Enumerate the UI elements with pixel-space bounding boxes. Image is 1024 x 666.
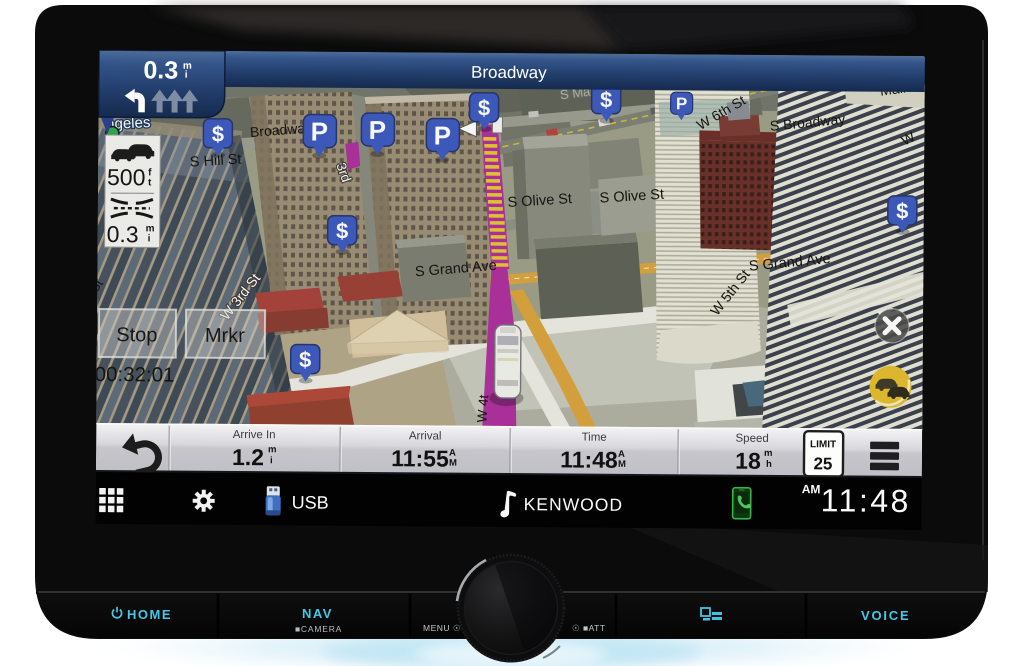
svg-text:KENWOOD: KENWOOD: [524, 494, 624, 515]
svg-text:25: 25: [813, 454, 832, 473]
svg-text:MENU ☉: MENU ☉: [423, 623, 461, 633]
svg-text:Speed: Speed: [735, 433, 768, 445]
svg-text:HOME: HOME: [127, 607, 172, 622]
svg-text:1.2: 1.2: [232, 444, 264, 470]
svg-text:i: i: [270, 455, 273, 466]
svg-text:M: M: [449, 458, 457, 469]
svg-text:m: m: [764, 448, 773, 459]
svg-text:VOICE: VOICE: [861, 608, 910, 623]
svg-text:11:48: 11:48: [560, 446, 618, 472]
svg-text:☉ ■ATT: ☉ ■ATT: [572, 623, 606, 633]
svg-text:i: i: [185, 70, 188, 81]
svg-text:LIMIT: LIMIT: [810, 439, 836, 450]
svg-text:0.3: 0.3: [143, 56, 178, 84]
svg-text:Arrive In: Arrive In: [233, 429, 276, 441]
svg-text:m: m: [268, 444, 277, 455]
svg-text:Arrival: Arrival: [409, 430, 442, 442]
svg-text:Broadway: Broadway: [471, 63, 547, 83]
svg-text:11:48: 11:48: [821, 482, 911, 519]
svg-text:h: h: [766, 459, 772, 470]
svg-text:18: 18: [735, 448, 761, 474]
svg-text:AM: AM: [802, 482, 821, 496]
svg-text:NAV: NAV: [302, 606, 333, 621]
svg-text:Time: Time: [582, 432, 607, 444]
svg-text:USB: USB: [292, 492, 329, 512]
svg-text:■CAMERA: ■CAMERA: [295, 624, 342, 634]
svg-text:M: M: [618, 459, 626, 470]
svg-text:11:55: 11:55: [391, 445, 449, 471]
